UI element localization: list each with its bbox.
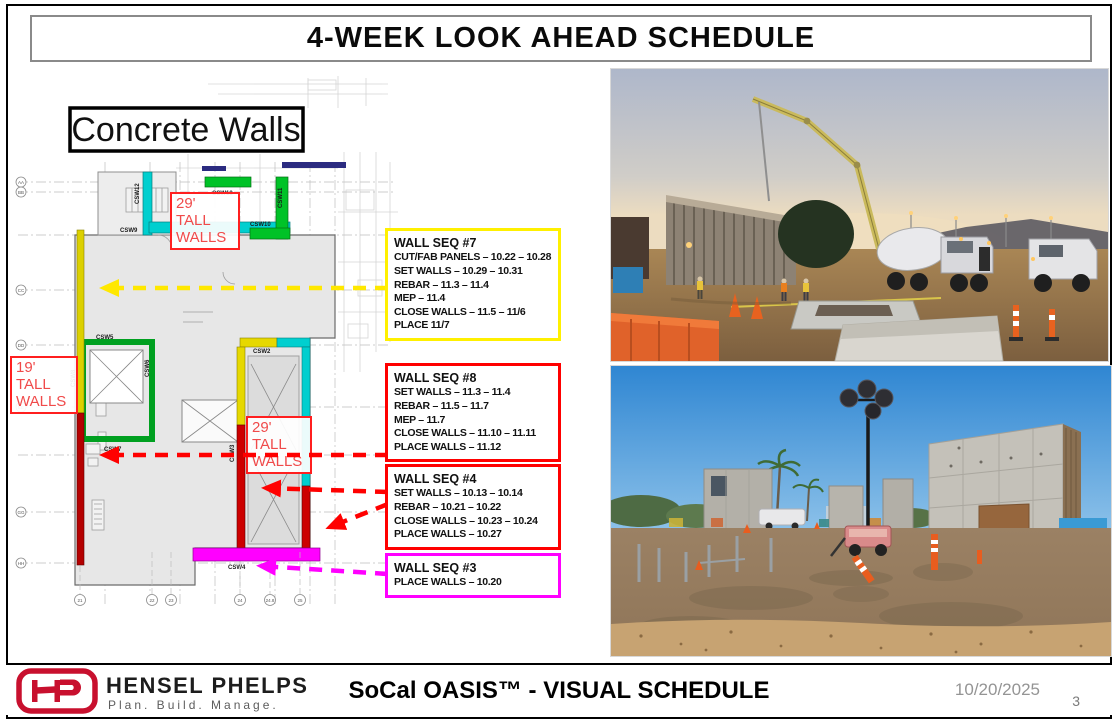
callout-title: WALL SEQ #7 <box>394 235 554 251</box>
tag-csw9: CSW9 <box>120 228 138 234</box>
tag-csw3: CSW3 <box>230 444 236 462</box>
slide-title-box: 4-WEEK LOOK AHEAD SCHEDULE <box>30 15 1092 62</box>
tag-csw7: CSW7 <box>104 447 122 453</box>
callout-wall-seq-7: WALL SEQ #7 CUT/FAB PANELS – 10.22 – 10.… <box>385 228 561 341</box>
callout-line: SET WALLS – 10.29 – 10.31 <box>394 265 554 279</box>
svg-text:24: 24 <box>237 598 243 603</box>
wall-csw2-cyan <box>277 338 310 347</box>
photo-bottom-scene <box>611 366 1111 656</box>
slide-date: 10/20/2025 <box>955 680 1040 700</box>
callout-line: SET WALLS – 11.3 – 11.4 <box>394 386 554 400</box>
svg-text:22: 22 <box>149 598 155 603</box>
wall-csw13 <box>205 177 251 187</box>
svg-text:HH: HH <box>18 561 25 566</box>
wall-csw3-red <box>237 425 245 548</box>
slide-title: 4-WEEK LOOK AHEAD SCHEDULE <box>307 22 815 55</box>
footer-title: SoCal OASIS™ - VISUAL SCHEDULE <box>6 677 1112 705</box>
slide: 4-WEEK LOOK AHEAD SCHEDULE <box>0 0 1119 723</box>
tag-csw11: CSW11 <box>278 187 284 208</box>
plan-title-box: Concrete Walls <box>70 108 303 151</box>
callout-title: WALL SEQ #8 <box>394 370 554 386</box>
tag-csw10: CSW10 <box>250 222 271 228</box>
svg-text:23: 23 <box>168 598 174 603</box>
photo-top-scene <box>611 69 1108 361</box>
svg-text:24.8: 24.8 <box>266 598 275 603</box>
svg-text:DD: DD <box>18 343 25 348</box>
photo-concrete-pour-dusk <box>610 68 1109 362</box>
callout-line: MEP – 11.7 <box>394 414 554 428</box>
svg-text:25: 25 <box>297 598 303 603</box>
callout-title: WALL SEQ #3 <box>394 560 554 576</box>
wall-csw8-red <box>77 413 84 565</box>
callout-line: REBAR – 11.3 – 11.4 <box>394 279 554 293</box>
embed-plate <box>282 162 346 168</box>
callout-line: CUT/FAB PANELS – 10.22 – 10.28 <box>394 251 554 265</box>
callout-line: PLACE 11/7 <box>394 319 554 333</box>
footer: HENSEL PHELPS Plan. Build. Manage. SoCal… <box>6 665 1112 715</box>
blue-equipment <box>613 267 643 293</box>
wall-csw2-yellow <box>240 338 277 347</box>
callout-line: PLACE WALLS – 10.27 <box>394 528 554 542</box>
tag-csw12: CSW12 <box>135 183 141 204</box>
photo-tiltup-panels-day <box>610 365 1112 657</box>
callout-line: SET WALLS – 10.13 – 10.14 <box>394 487 554 501</box>
callout-line: MEP – 11.4 <box>394 292 554 306</box>
svg-text:BB: BB <box>18 190 24 195</box>
wall-left-yellow <box>77 230 84 413</box>
callout-wall-seq-8: WALL SEQ #8 SET WALLS – 11.3 – 11.4 REBA… <box>385 363 561 462</box>
tag-csw2: CSW2 <box>253 349 271 355</box>
callout-line: PLACE WALLS – 10.20 <box>394 576 554 590</box>
tag-csw5: CSW5 <box>96 335 114 341</box>
tag-csw6: CSW6 <box>145 359 151 377</box>
callout-line: REBAR – 10.21 – 10.22 <box>394 501 554 515</box>
callout-line: CLOSE WALLS – 11.5 – 11/6 <box>394 306 554 320</box>
tree-silhouette <box>778 200 854 268</box>
page-number: 3 <box>1072 693 1080 709</box>
callout-wall-seq-4: WALL SEQ #4 SET WALLS – 10.13 – 10.14 RE… <box>385 464 561 550</box>
wall-csw10 <box>250 228 290 239</box>
label-29-tall-walls-lower: 29' TALL WALLS <box>246 416 312 474</box>
label-29-tall-walls-upper: 29' TALL WALLS <box>170 192 240 250</box>
tag-csw4: CSW4 <box>228 565 246 571</box>
label-19-tall-walls: 19' TALL WALLS <box>10 356 78 414</box>
callout-wall-seq-3: WALL SEQ #3 PLACE WALLS – 10.20 <box>385 553 561 598</box>
callout-title: WALL SEQ #4 <box>394 471 554 487</box>
callout-line: REBAR – 11.5 – 11.7 <box>394 400 554 414</box>
wall-csw4-magenta <box>193 548 320 561</box>
svg-text:AA: AA <box>18 180 24 185</box>
wall-shaft-left-yellow <box>237 347 245 425</box>
embed-plate <box>202 166 226 171</box>
svg-text:21: 21 <box>77 598 83 603</box>
plan-title: Concrete Walls <box>71 111 300 149</box>
callout-line: CLOSE WALLS – 11.10 – 11.11 <box>394 427 554 441</box>
callout-line: PLACE WALLS – 11.12 <box>394 441 554 455</box>
callout-line: CLOSE WALLS – 10.23 – 10.24 <box>394 515 554 529</box>
svg-text:GG: GG <box>17 510 25 515</box>
orange-k-rail <box>611 313 719 361</box>
svg-text:CC: CC <box>18 288 25 293</box>
wall-shaft-right-red <box>302 486 310 548</box>
